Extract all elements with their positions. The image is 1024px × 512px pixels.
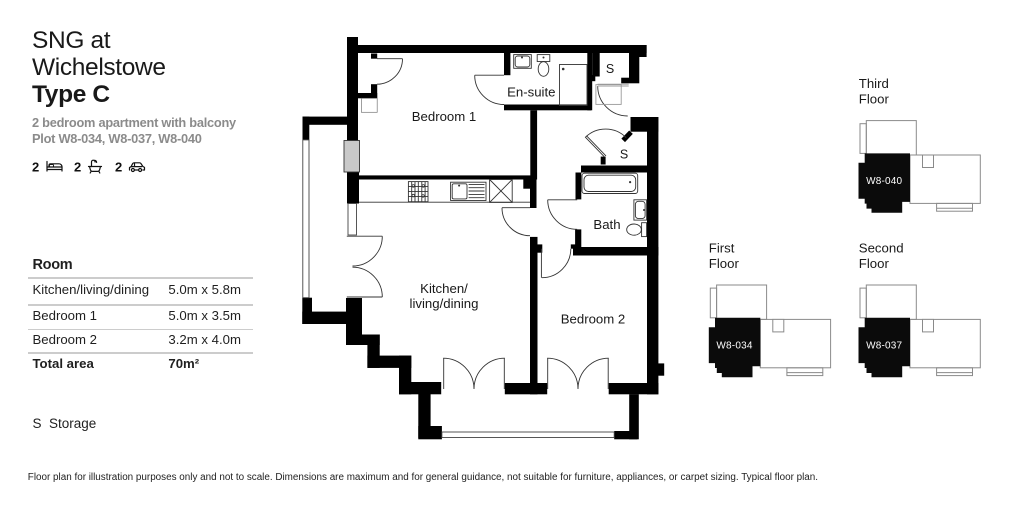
svg-text:Second: Second [859, 241, 904, 256]
svg-text:En‑suite: En‑suite [507, 84, 555, 99]
svg-text:Bedroom 2: Bedroom 2 [561, 312, 626, 327]
svg-text:S: S [606, 62, 614, 76]
svg-text:S: S [620, 148, 628, 162]
svg-text:living/dining: living/dining [410, 296, 479, 311]
svg-text:First: First [709, 241, 735, 256]
svg-text:Bath: Bath [593, 217, 620, 232]
svg-text:W8‑040: W8‑040 [866, 176, 902, 187]
svg-text:W8‑034: W8‑034 [716, 341, 752, 352]
svg-text:Floor: Floor [859, 92, 890, 107]
svg-text:Bedroom 1: Bedroom 1 [412, 109, 477, 124]
svg-text:W8‑037: W8‑037 [866, 341, 902, 352]
svg-text:Floor: Floor [859, 256, 890, 271]
svg-text:Floor: Floor [709, 256, 740, 271]
svg-text:Third: Third [859, 76, 889, 91]
svg-text:Kitchen/: Kitchen/ [420, 281, 468, 296]
